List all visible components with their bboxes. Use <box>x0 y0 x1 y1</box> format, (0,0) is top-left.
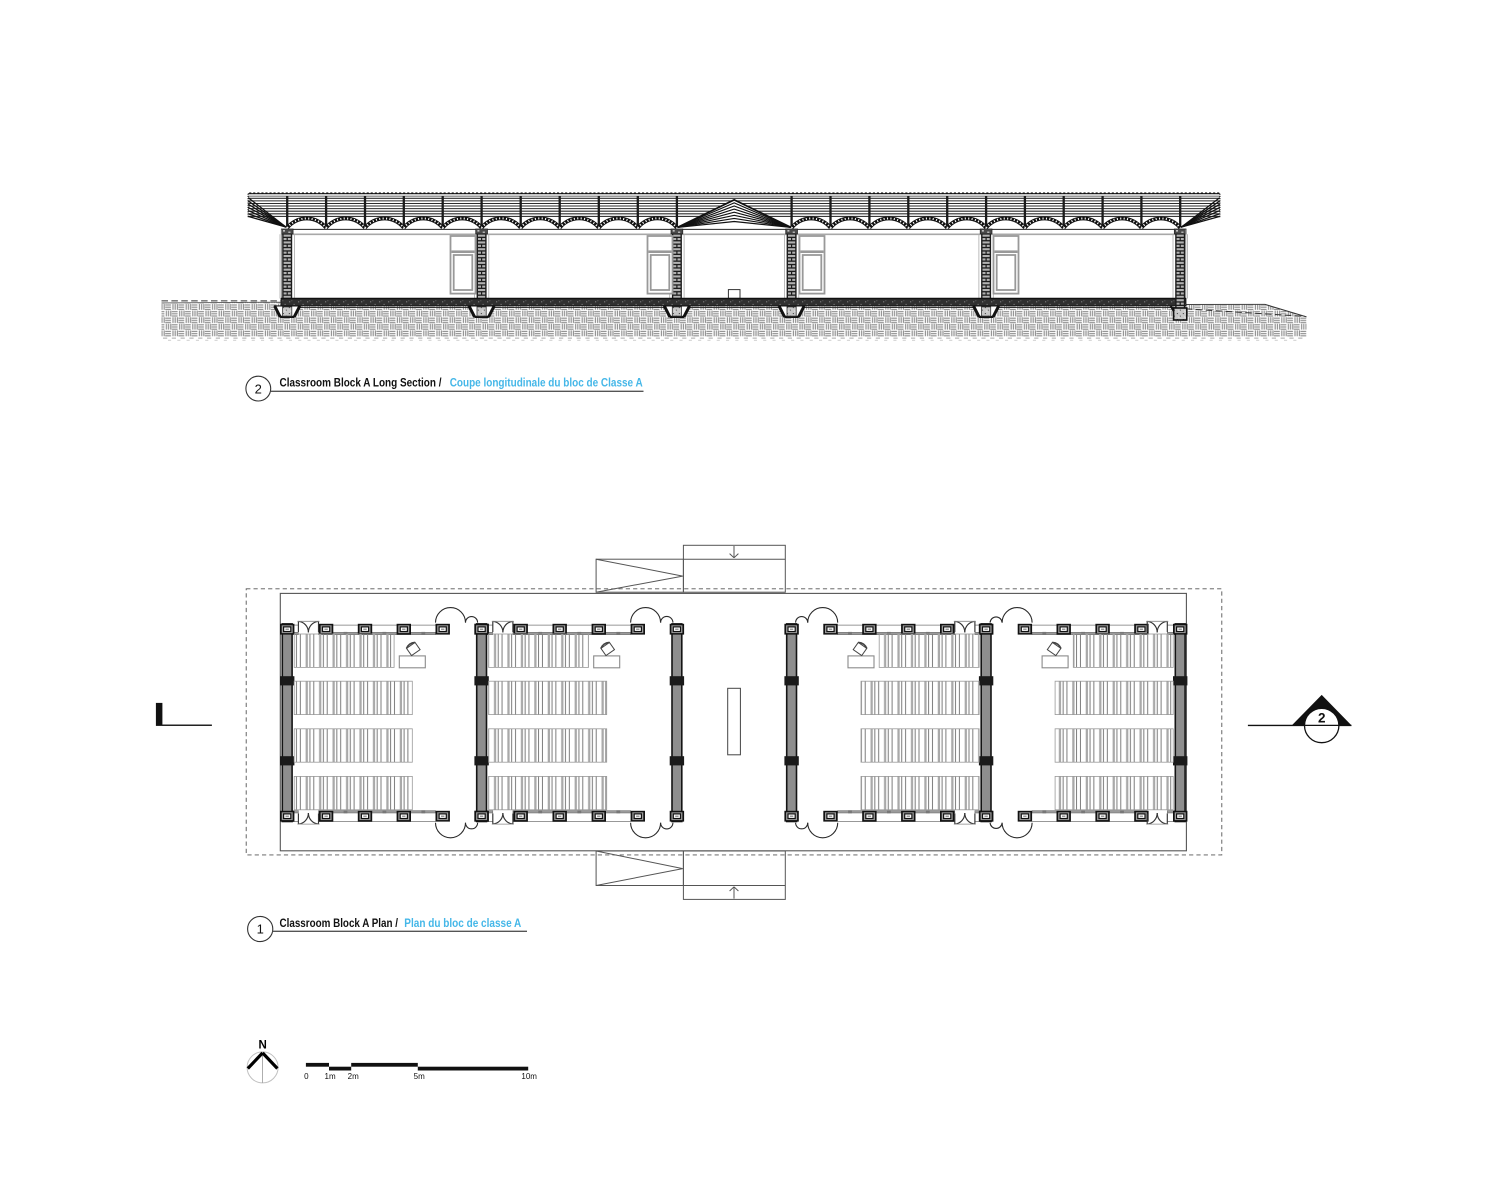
svg-text:1m: 1m <box>325 1072 336 1081</box>
svg-text:Classroom Block A Long Section: Classroom Block A Long Section / <box>280 376 443 390</box>
svg-text:2: 2 <box>255 381 262 396</box>
svg-text:2m: 2m <box>348 1072 359 1081</box>
svg-text:10m: 10m <box>521 1072 537 1081</box>
svg-text:N: N <box>258 1040 266 1052</box>
svg-text:Classroom Block A Plan /: Classroom Block A Plan / <box>280 916 399 930</box>
svg-text:Coupe longitudinale du bloc de: Coupe longitudinale du bloc de Classe A <box>450 376 643 390</box>
svg-text:5m: 5m <box>414 1072 425 1081</box>
svg-text:1: 1 <box>257 922 264 937</box>
svg-text:Plan du bloc de classe A: Plan du bloc de classe A <box>404 916 521 930</box>
svg-text:0: 0 <box>304 1072 309 1081</box>
svg-text:2: 2 <box>1318 711 1326 726</box>
